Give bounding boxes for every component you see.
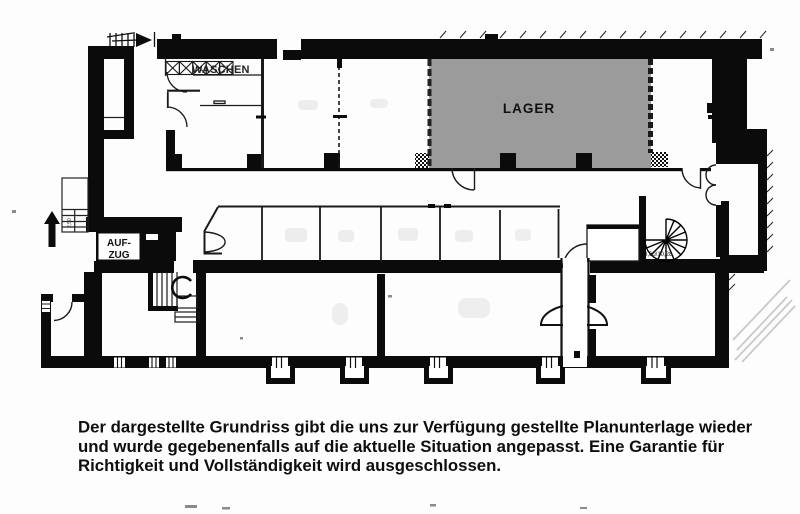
svg-text:Der dargestellte Grundriss gib: Der dargestellte Grundriss gibt die uns … xyxy=(78,418,753,437)
svg-text:und wurde gegebenenfalls auf d: und wurde gegebenenfalls auf die aktuell… xyxy=(78,437,725,456)
svg-text:Richtigkeit und Vollständigkei: Richtigkeit und Vollständigkeit wird aus… xyxy=(78,456,501,475)
